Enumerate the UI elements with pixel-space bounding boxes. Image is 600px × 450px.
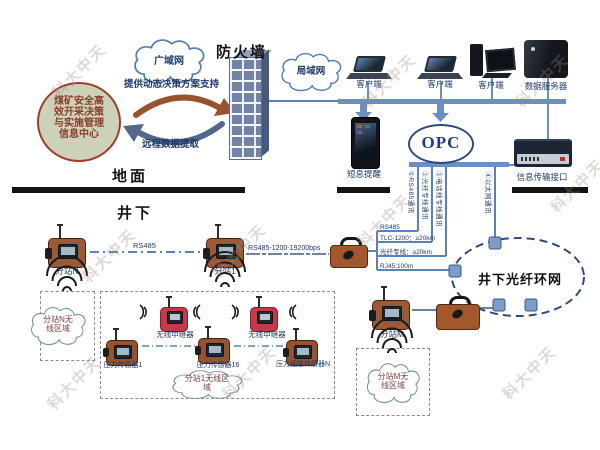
wave-icon	[290, 305, 296, 319]
wifi-waves-substation-1	[205, 252, 245, 287]
wave-icon	[140, 305, 146, 319]
wifi-waves-substation-n	[47, 256, 87, 291]
wireless-waves-layer	[0, 0, 600, 450]
wave-icon	[194, 305, 200, 319]
wave-icon	[232, 305, 238, 319]
diagram-canvas: 煤矿安全高效开采决策与实施管理信息中心 广域网 局域网 分站N无线区域 分站1无…	[0, 0, 600, 450]
wifi-waves-substation-m	[372, 318, 412, 353]
